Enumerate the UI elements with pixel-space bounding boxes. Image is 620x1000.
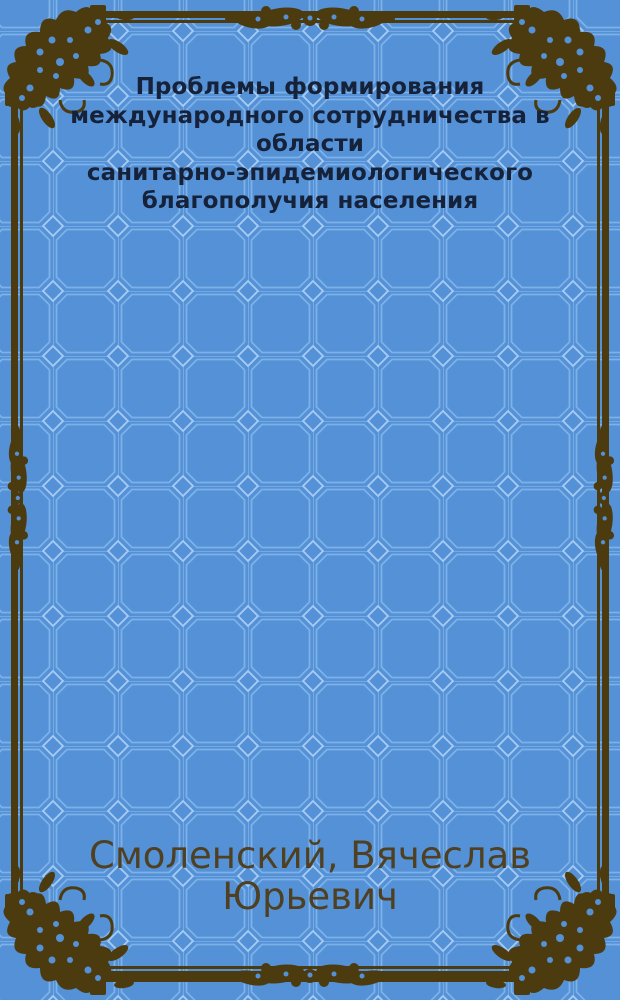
book-cover: Проблемы формирования международного сот… <box>0 0 620 1000</box>
book-title: Проблемы формирования международного сот… <box>40 73 580 216</box>
book-title-line: международного сотрудничества в <box>40 102 580 131</box>
book-title-line: санитарно-эпидемиологического <box>40 159 580 188</box>
book-title-line: благополучия населения <box>40 187 580 216</box>
book-title-line: области <box>40 130 580 159</box>
book-author-line: Юрьевич <box>20 876 600 917</box>
book-title-line: Проблемы формирования <box>40 73 580 102</box>
book-author-line: Смоленский, Вячеслав <box>20 835 600 876</box>
book-author: Смоленский, Вячеслав Юрьевич <box>20 835 600 917</box>
